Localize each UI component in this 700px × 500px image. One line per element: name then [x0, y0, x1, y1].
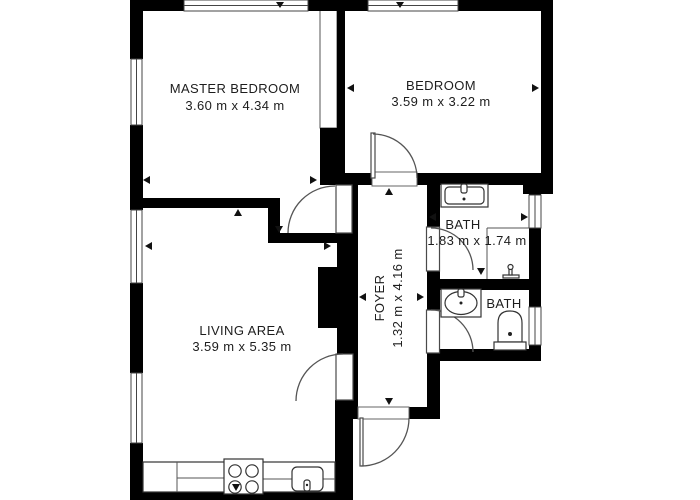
kitchen-sink: [292, 467, 323, 491]
label-living-area: LIVING AREA: [199, 323, 284, 338]
bath-bottom-sink: [441, 289, 481, 317]
window-bedroom-top: [368, 0, 458, 11]
label-bedroom-dims: 3.59 m x 3.22 m: [391, 94, 490, 109]
stove: [224, 459, 263, 494]
window-living-left-upper: [131, 210, 142, 283]
duct-shaft: [320, 0, 337, 128]
window-bath-bottom-right: [529, 307, 541, 345]
label-master-bedroom-dims: 3.60 m x 4.34 m: [185, 98, 284, 113]
toilet: [494, 311, 526, 350]
label-foyer: FOYER: [372, 275, 387, 322]
label-bath-bottom: BATH: [486, 296, 521, 311]
window-master-top: [184, 0, 308, 11]
bath-top-sink: [441, 184, 488, 207]
label-master-bedroom: MASTER BEDROOM: [170, 81, 301, 96]
window-living-left-lower: [131, 373, 142, 443]
label-bath-top: BATH: [445, 217, 480, 232]
label-bath-top-dims: 1.83 m x 1.74 m: [427, 233, 526, 248]
floorplan-canvas: MASTER BEDROOM 3.60 m x 4.34 m BEDROOM 3…: [0, 0, 700, 500]
window-master-left: [131, 59, 142, 125]
floorplan-svg: MASTER BEDROOM 3.60 m x 4.34 m BEDROOM 3…: [0, 0, 700, 500]
window-bath-top-right: [529, 195, 541, 228]
label-foyer-dims: 1.32 m x 4.16 m: [390, 248, 405, 347]
label-bedroom: BEDROOM: [406, 78, 476, 93]
label-living-area-dims: 3.59 m x 5.35 m: [192, 339, 291, 354]
